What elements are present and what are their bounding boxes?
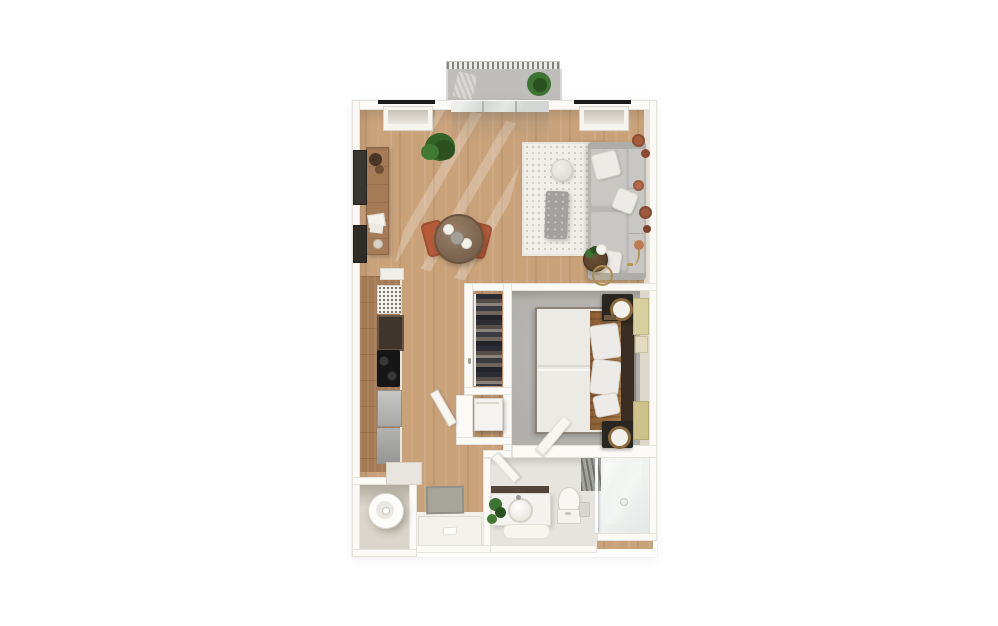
entry-platform-tag (443, 527, 458, 536)
towel (579, 502, 590, 517)
wall-bathroom-bottom (483, 545, 597, 553)
bed-pillow-lower (589, 358, 622, 396)
sink-faucet (516, 495, 521, 500)
washer-door-center (382, 507, 390, 515)
wall-utility-bottom (456, 437, 512, 445)
wall-art-upper (353, 150, 367, 205)
serving-bowl (450, 231, 464, 245)
wall-closet-utility-divider (464, 387, 512, 395)
bath-mat (503, 524, 550, 539)
wall-right (649, 100, 657, 541)
window-lintel-left (378, 100, 435, 104)
window-left-glass (388, 110, 428, 124)
sliding-balcony-door (451, 100, 549, 112)
clay-wall-plate-3 (633, 180, 644, 191)
kitchen-shelf (380, 268, 404, 280)
arc-lamp-base (627, 263, 633, 266)
clay-wall-plate-1 (632, 134, 645, 147)
window-right (579, 106, 629, 131)
cooktop (377, 350, 400, 387)
living-plant-leaf-3 (421, 144, 439, 160)
shower-drain (620, 498, 628, 506)
wall-closet-right (503, 283, 512, 458)
decor-candle (373, 239, 383, 249)
decor-bowl-small (375, 165, 384, 174)
wall-laundry-right (409, 477, 417, 557)
kitchen-sink-module (377, 315, 404, 351)
closet-door-handle (468, 358, 471, 364)
clay-wall-plate-6 (634, 240, 644, 250)
floor-plan-canvas (0, 0, 998, 626)
balcony-plant-shade (533, 78, 547, 92)
window-lintel-right (574, 100, 631, 104)
nightstand-book (604, 315, 616, 320)
nesting-table-small (592, 265, 613, 286)
wall-shower-bottom (597, 533, 657, 541)
duvet (537, 309, 592, 432)
wall-laundry-bottom (352, 549, 417, 557)
leaning-art-top-1 (633, 298, 649, 335)
dish-rack (377, 285, 402, 314)
vanity-plant-leaf-3 (487, 514, 497, 524)
shower-glass-panel (595, 458, 598, 533)
oven (377, 390, 402, 427)
toilet-flush-button (565, 512, 571, 515)
vanity-sink (508, 498, 533, 523)
wall-living-divider (464, 283, 657, 291)
leaning-art-bottom (633, 401, 649, 440)
shower-tiled-wall (581, 458, 601, 491)
wall-bedroom-bathroom (512, 445, 657, 458)
wall-closet-left (464, 283, 473, 395)
clay-wall-plate-2 (641, 149, 650, 158)
wall-art-lower (353, 225, 367, 263)
wall-entry-bottom (411, 545, 491, 553)
leaning-art-top-2 (635, 336, 648, 353)
kitchen-end-counter (386, 462, 422, 485)
window-left (383, 106, 433, 131)
table-ball-lamp (596, 244, 607, 255)
ottoman (544, 191, 569, 240)
window-right-glass (584, 110, 624, 124)
decor-papers-2 (370, 223, 384, 234)
doormat (426, 486, 464, 515)
vanity-backsplash (491, 486, 549, 493)
hanging-clothes (476, 294, 502, 386)
table-lamp-lower (608, 426, 631, 449)
bed-pillow-upper (589, 322, 623, 361)
balcony-door-reflection (452, 110, 549, 140)
pouf (551, 159, 573, 181)
shower-glass-glint (604, 462, 642, 524)
clay-wall-plate-4 (639, 206, 652, 219)
appliance-vent (476, 402, 499, 404)
clay-wall-plate-5 (643, 225, 651, 233)
refrigerator (377, 428, 400, 464)
